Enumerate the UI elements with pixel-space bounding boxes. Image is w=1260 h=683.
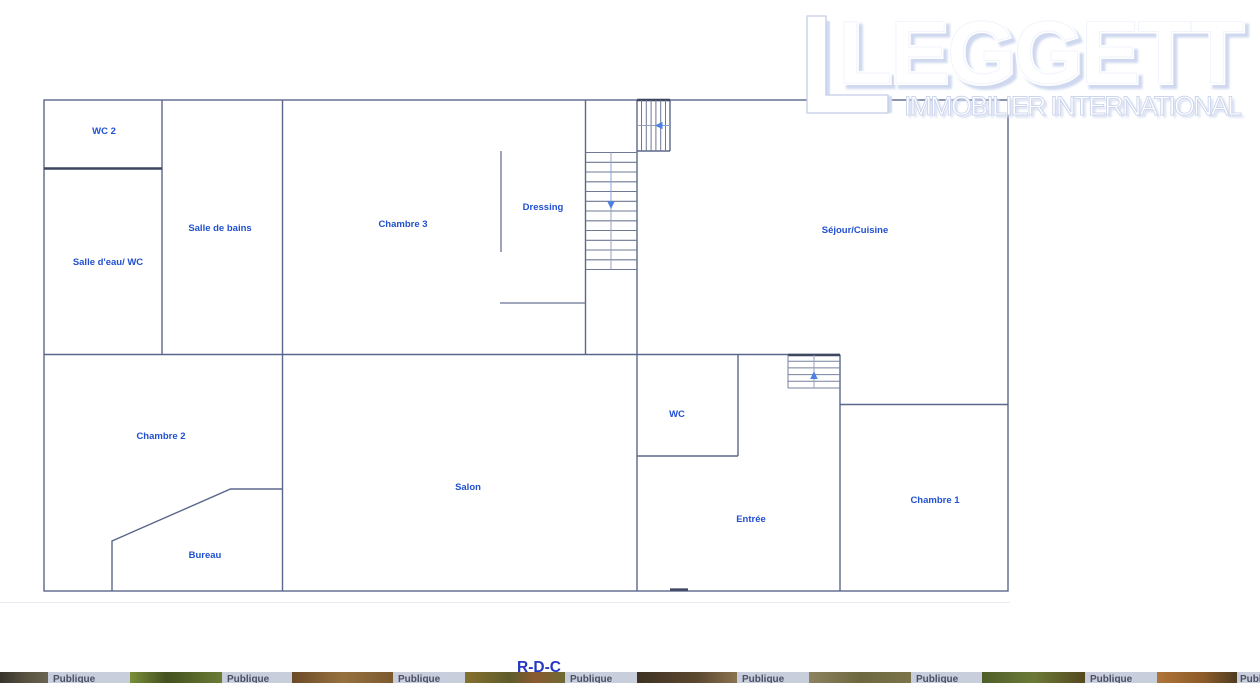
svg-text:Salon: Salon xyxy=(455,482,481,493)
svg-text:Publique: Publique xyxy=(53,674,96,683)
svg-text:Salle de bains: Salle de bains xyxy=(188,223,251,234)
svg-text:Bureau: Bureau xyxy=(189,550,222,561)
svg-text:Publique: Publique xyxy=(570,674,613,683)
svg-text:Publique: Publique xyxy=(742,674,785,683)
svg-text:Chambre 3: Chambre 3 xyxy=(378,219,427,230)
svg-text:Publique: Publique xyxy=(227,674,270,683)
svg-text:Chambre 1: Chambre 1 xyxy=(910,495,960,506)
svg-text:IMMOBILIER INTERNATIONAL: IMMOBILIER INTERNATIONAL xyxy=(904,91,1242,121)
svg-text:Séjour/Cuisine: Séjour/Cuisine xyxy=(822,225,889,236)
svg-text:Chambre 2: Chambre 2 xyxy=(136,431,185,442)
svg-text:Salle d'eau/ WC: Salle d'eau/ WC xyxy=(73,257,143,268)
svg-text:WC 2: WC 2 xyxy=(92,126,116,137)
svg-text:Publique: Publique xyxy=(398,674,441,683)
svg-text:WC: WC xyxy=(669,409,685,420)
svg-text:Publique: Publique xyxy=(916,674,959,683)
svg-text:Publique: Publique xyxy=(1240,674,1260,683)
svg-text:LEGGETT: LEGGETT xyxy=(838,2,1244,102)
svg-text:Entrée: Entrée xyxy=(736,514,766,525)
svg-text:Publique: Publique xyxy=(1090,674,1133,683)
svg-text:Dressing: Dressing xyxy=(523,202,564,213)
